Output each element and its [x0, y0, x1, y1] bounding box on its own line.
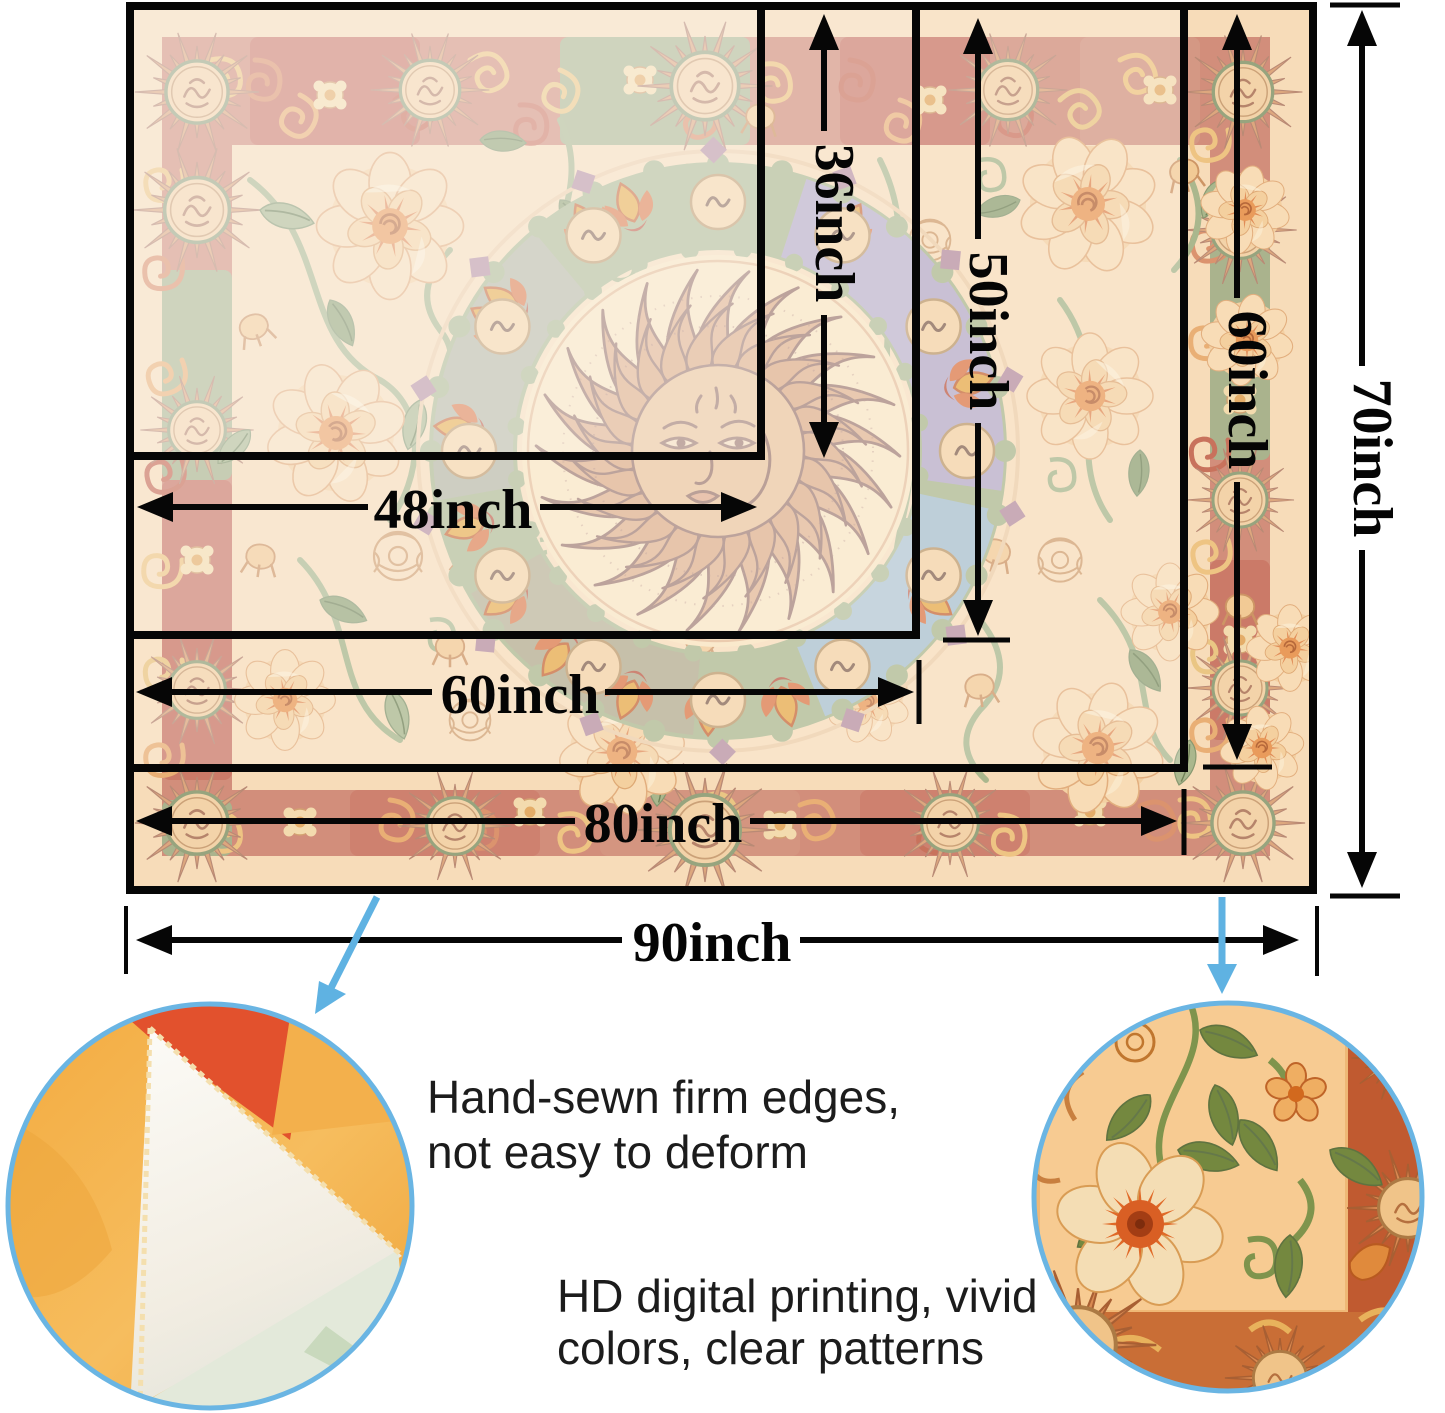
svg-text:60inch: 60inch	[1216, 311, 1278, 470]
svg-text:36inch: 36inch	[803, 144, 865, 303]
svg-text:HD digital printing, vivid: HD digital printing, vivid	[557, 1270, 1038, 1322]
svg-text:70inch: 70inch	[1341, 379, 1403, 538]
svg-text:90inch: 90inch	[633, 912, 792, 974]
svg-text:Hand-sewn firm edges,: Hand-sewn firm edges,	[427, 1071, 900, 1123]
svg-text:80inch: 80inch	[584, 793, 743, 855]
svg-text:50inch: 50inch	[957, 252, 1019, 411]
svg-text:colors, clear patterns: colors, clear patterns	[557, 1322, 984, 1374]
svg-text:not easy to deform: not easy to deform	[427, 1126, 808, 1178]
svg-text:48inch: 48inch	[374, 479, 533, 541]
svg-text:60inch: 60inch	[441, 664, 600, 726]
